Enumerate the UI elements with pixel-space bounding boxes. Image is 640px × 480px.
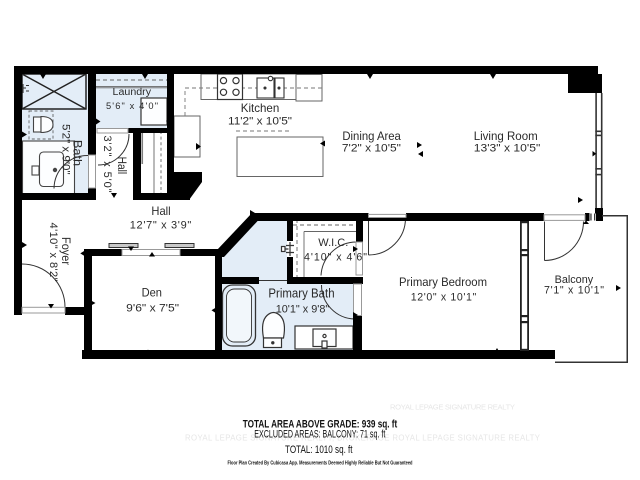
svg-text:12'7" x 3'9": 12'7" x 3'9": [130, 220, 192, 232]
svg-text:3'2" x 5'0": 3'2" x 5'0": [101, 136, 113, 193]
svg-text:Primary Bedroom: Primary Bedroom: [399, 275, 487, 289]
svg-text:Floor Plan Created By Cubicasa: Floor Plan Created By Cubicasa App. Meas…: [228, 461, 413, 467]
svg-text:Den: Den: [142, 286, 162, 300]
svg-text:9'6" x 7'5": 9'6" x 7'5": [126, 303, 179, 315]
svg-text:W.I.C.: W.I.C.: [318, 237, 348, 249]
svg-text:7'1" x 10'1": 7'1" x 10'1": [544, 285, 604, 297]
svg-text:TOTAL: 1010 sq. ft: TOTAL: 1010 sq. ft: [285, 444, 353, 456]
svg-text:Dining Area: Dining Area: [342, 129, 401, 143]
svg-text:Primary Bath: Primary Bath: [268, 287, 334, 301]
svg-text:Hall: Hall: [115, 157, 127, 175]
svg-text:12'0" x 10'1": 12'0" x 10'1": [411, 291, 477, 303]
svg-text:10'1" x 9'8": 10'1" x 9'8": [276, 304, 330, 316]
svg-text:Living Room: Living Room: [474, 129, 538, 143]
svg-text:7'2" x 10'5": 7'2" x 10'5": [342, 143, 401, 155]
svg-text:4'10" x 4'6": 4'10" x 4'6": [304, 252, 367, 264]
svg-text:Foyer: Foyer: [59, 237, 73, 265]
svg-text:5'6" x 4'0": 5'6" x 4'0": [106, 101, 158, 111]
svg-text:13'3" x 10'5": 13'3" x 10'5": [474, 143, 541, 155]
svg-text:Hall: Hall: [151, 204, 170, 218]
svg-text:Laundry: Laundry: [113, 87, 152, 98]
svg-text:ROYAL LEPAGE SIGNATURE REALTY: ROYAL LEPAGE SIGNATURE REALTY: [390, 403, 515, 412]
svg-text:5'2" x 9'0": 5'2" x 9'0": [59, 124, 71, 175]
svg-text:11'2" x 10'5": 11'2" x 10'5": [228, 115, 292, 127]
svg-text:EXCLUDED AREAS: BALCONY: 71 sq: EXCLUDED AREAS: BALCONY: 71 sq. ft: [254, 428, 385, 440]
svg-text:Bath: Bath: [71, 140, 85, 166]
svg-text:Kitchen: Kitchen: [241, 101, 280, 115]
svg-text:4'10" x 8'2": 4'10" x 8'2": [47, 223, 59, 282]
